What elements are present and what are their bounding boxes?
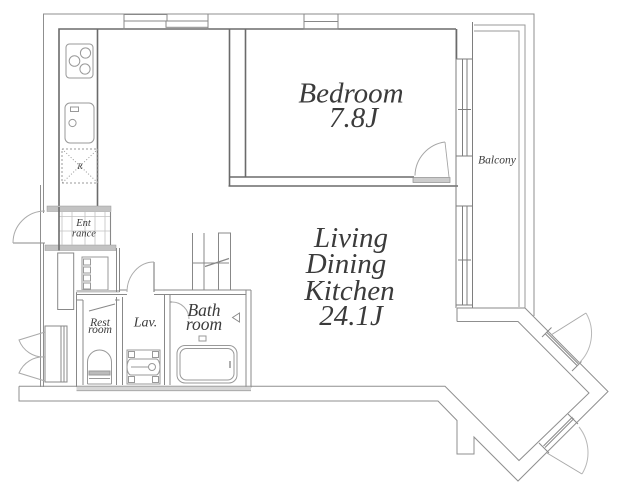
svg-text:Lav.: Lav. xyxy=(133,316,157,331)
svg-text:7.8J: 7.8J xyxy=(329,102,379,134)
svg-text:Balcony: Balcony xyxy=(478,155,517,167)
svg-text:R: R xyxy=(77,162,83,171)
svg-text:24.1J: 24.1J xyxy=(319,300,384,332)
svg-text:room: room xyxy=(186,314,222,334)
svg-text:room: room xyxy=(88,324,112,336)
svg-text:Ent: Ent xyxy=(75,218,92,229)
svg-text:rance: rance xyxy=(72,229,96,240)
